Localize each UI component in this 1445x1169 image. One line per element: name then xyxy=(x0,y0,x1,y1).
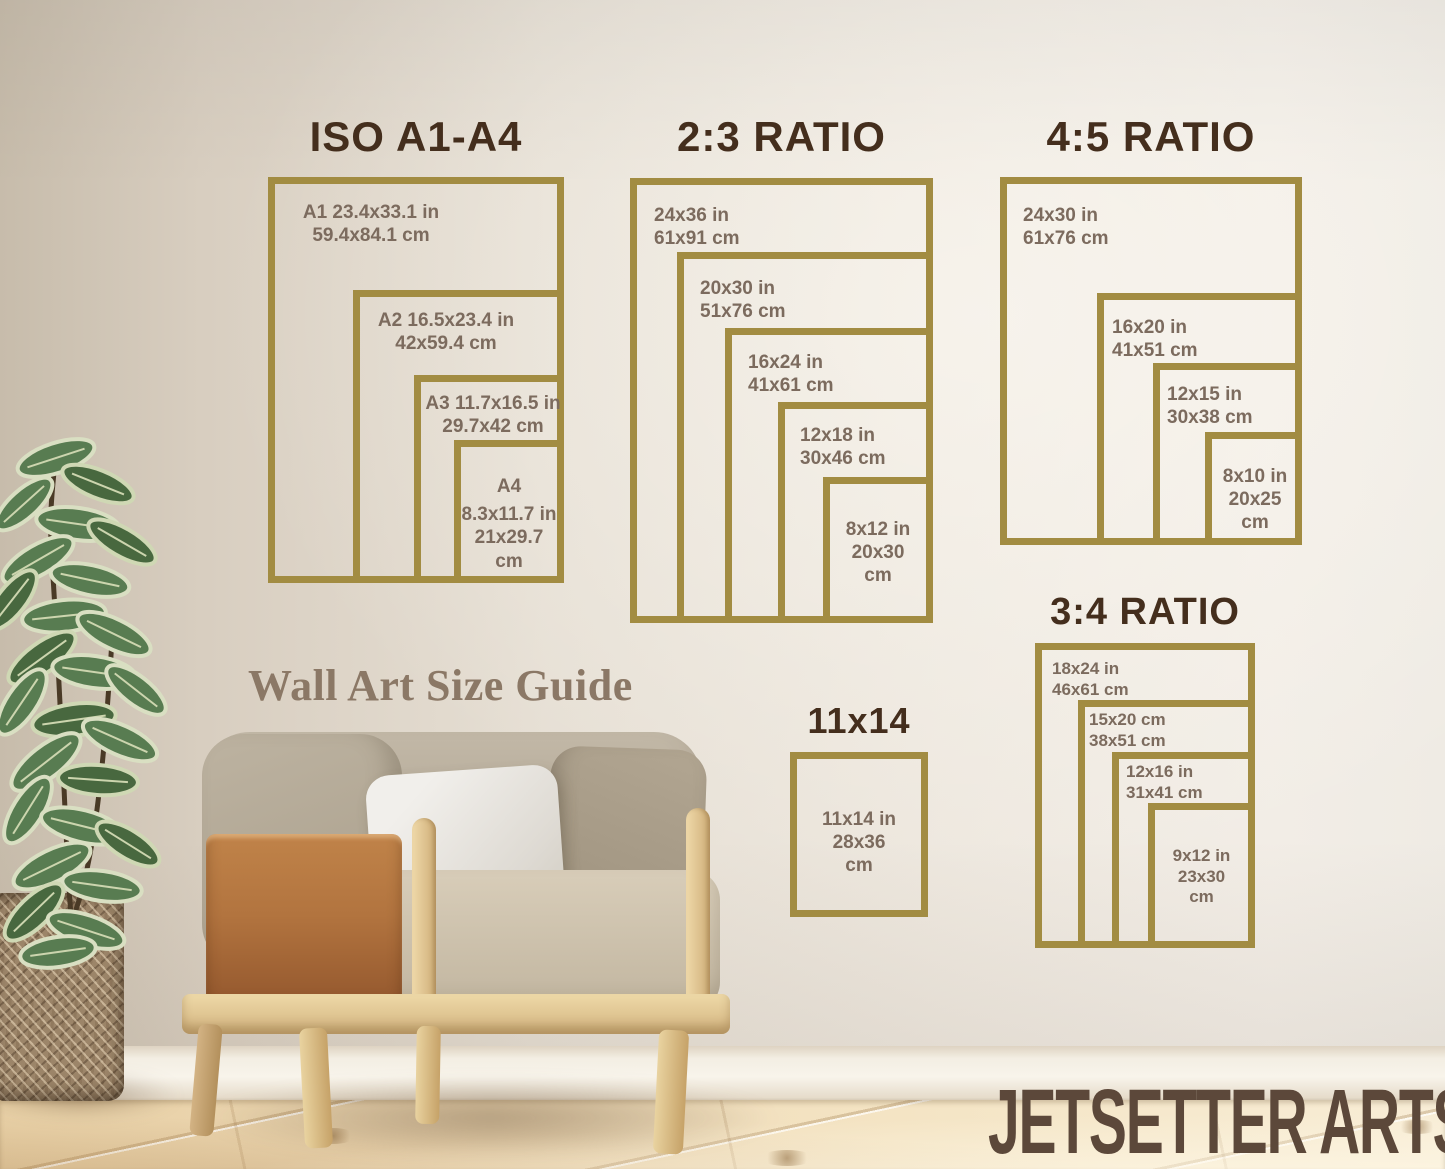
size-group-4-5: 24x30 in 61x76 cm 16x20 in 41x51 cm 12x1… xyxy=(1000,177,1302,545)
size-group-3-4: 18x24 in 46x61 cm 15x20 cm 38x51 cm 12x1… xyxy=(1035,643,1255,948)
frame-label-16x24: 16x24 in 41x61 cm xyxy=(748,351,834,397)
label-line: 15x20 cm xyxy=(1089,710,1166,731)
label-line: cm xyxy=(790,854,928,877)
label-line: 12x18 in xyxy=(800,424,886,447)
frame-label-a4: A4 8.3x11.7 in 21x29.7 cm xyxy=(458,475,560,573)
frame-label-a1: A1 23.4x33.1 in 59.4x84.1 cm xyxy=(286,201,456,247)
frame-label-18x24: 18x24 in 46x61 cm xyxy=(1052,659,1129,700)
label-line: 20x25 xyxy=(1208,488,1302,511)
size-group-2-3: 24x36 in 61x91 cm 20x30 in 51x76 cm 16x2… xyxy=(630,178,933,623)
label-line: 11x14 in xyxy=(790,808,928,831)
frame-label-9x12: 9x12 in 23x30 cm xyxy=(1150,846,1253,908)
label-line: A2 16.5x23.4 in xyxy=(366,309,526,332)
size-group-iso: A1 23.4x33.1 in 59.4x84.1 cm A2 16.5x23.… xyxy=(268,177,564,583)
label-line: 9x12 in xyxy=(1150,846,1253,867)
group-title-11x14: 11x14 xyxy=(780,703,938,739)
label-line: 42x59.4 cm xyxy=(366,332,526,355)
label-line: 8.3x11.7 in xyxy=(458,503,560,526)
chair-leg xyxy=(415,1026,441,1124)
label-line: A3 11.7x16.5 in xyxy=(418,392,568,415)
label-line: 29.7x42 cm xyxy=(418,415,568,438)
label-line: 16x20 in xyxy=(1112,316,1198,339)
label-line: 8x12 in xyxy=(826,518,930,541)
chair-leather-panel xyxy=(206,834,402,1014)
label-line: 61x76 cm xyxy=(1023,227,1109,250)
chair-arm-post xyxy=(686,808,710,1006)
frame-label-24x30: 24x30 in 61x76 cm xyxy=(1023,204,1109,250)
chair-leg xyxy=(653,1029,689,1154)
group-title-2-3: 2:3 RATIO xyxy=(630,116,933,158)
frame-label-8x12: 8x12 in 20x30 cm xyxy=(826,518,930,588)
group-title-iso: ISO A1-A4 xyxy=(268,116,564,158)
label-line: 20x30 xyxy=(826,541,930,564)
label-line: 24x36 in xyxy=(654,204,740,227)
frame-label-24x36: 24x36 in 61x91 cm xyxy=(654,204,740,250)
label-line: cm xyxy=(458,550,560,573)
label-line: 8x10 in xyxy=(1208,465,1302,488)
label-line: 24x30 in xyxy=(1023,204,1109,227)
group-title-3-4: 3:4 RATIO xyxy=(1035,593,1255,631)
frame-label-15x20: 15x20 cm 38x51 cm xyxy=(1089,710,1166,751)
frame-label-12x15: 12x15 in 30x38 cm xyxy=(1167,383,1253,429)
label-line: cm xyxy=(1150,887,1253,908)
label-line: 16x24 in xyxy=(748,351,834,374)
label-line: 51x76 cm xyxy=(700,300,786,323)
label-line: 23x30 xyxy=(1150,867,1253,888)
label-line: A4 xyxy=(458,475,560,498)
label-line: 38x51 cm xyxy=(1089,731,1166,752)
label-line: 31x41 cm xyxy=(1126,783,1203,804)
label-line: 18x24 in xyxy=(1052,659,1129,680)
label-line: cm xyxy=(826,564,930,587)
label-line: 30x46 cm xyxy=(800,447,886,470)
label-line: 46x61 cm xyxy=(1052,680,1129,701)
label-line: 61x91 cm xyxy=(654,227,740,250)
frame-label-8x10: 8x10 in 20x25 cm xyxy=(1208,465,1302,535)
label-line: 28x36 xyxy=(790,831,928,854)
frame-label-11x14: 11x14 in 28x36 cm xyxy=(790,808,928,878)
frame-label-a2: A2 16.5x23.4 in 42x59.4 cm xyxy=(366,309,526,355)
frame-label-12x18: 12x18 in 30x46 cm xyxy=(800,424,886,470)
label-line: 59.4x84.1 cm xyxy=(286,224,456,247)
label-line: 30x38 cm xyxy=(1167,406,1253,429)
label-line: 20x30 in xyxy=(700,277,786,300)
label-line: 12x15 in xyxy=(1167,383,1253,406)
armchair xyxy=(180,718,740,1168)
size-group-11x14: 11x14 in 28x36 cm xyxy=(790,752,928,917)
chair-leg xyxy=(299,1027,333,1148)
label-line: 41x51 cm xyxy=(1112,339,1198,362)
caption-wall-art-size-guide: Wall Art Size Guide xyxy=(248,660,648,711)
frame-label-16x20: 16x20 in 41x51 cm xyxy=(1112,316,1198,362)
label-line: A1 23.4x33.1 in xyxy=(286,201,456,224)
label-line: 21x29.7 xyxy=(458,526,560,549)
frame-label-20x30: 20x30 in 51x76 cm xyxy=(700,277,786,323)
label-line: 41x61 cm xyxy=(748,374,834,397)
chair-wood-rail xyxy=(182,994,730,1034)
chair-leg xyxy=(189,1023,223,1137)
label-line: cm xyxy=(1208,511,1302,534)
frame-label-12x16: 12x16 in 31x41 cm xyxy=(1126,762,1203,803)
floor-knot xyxy=(760,1150,814,1166)
label-line: 12x16 in xyxy=(1126,762,1203,783)
brand-jetsetter-arts: JETSETTER ARTS xyxy=(988,1076,1445,1168)
potted-plant xyxy=(0,420,184,980)
group-title-4-5: 4:5 RATIO xyxy=(1000,116,1302,158)
chair-arm-post xyxy=(412,818,436,1010)
wall-art-size-guide-mockup: ISO A1-A4 A1 23.4x33.1 in 59.4x84.1 cm A… xyxy=(0,0,1445,1169)
frame-label-a3: A3 11.7x16.5 in 29.7x42 cm xyxy=(418,392,568,438)
